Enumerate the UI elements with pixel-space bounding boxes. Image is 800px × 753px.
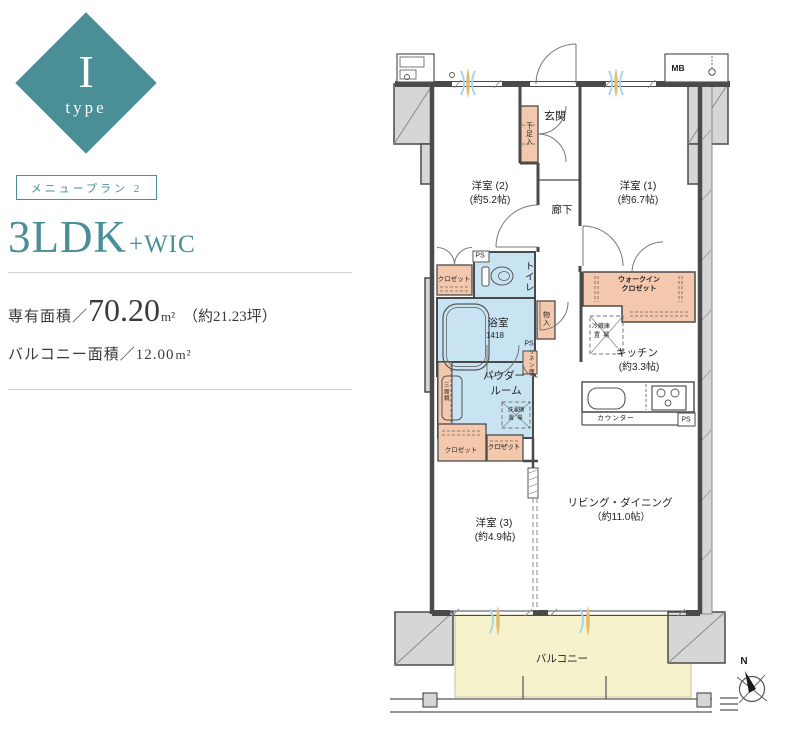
room-size-bedroom1: (約6.7帖) — [618, 196, 659, 206]
type-badge-content: I type — [36, 33, 136, 133]
area-tsubo: （約21.23坪） — [183, 305, 277, 326]
mb-label: MB — [671, 64, 684, 73]
divider-top — [8, 272, 352, 273]
layout-suffix: +WIC — [129, 231, 196, 259]
closet-label-left: クロゼット — [445, 448, 478, 455]
bedroom1-door — [583, 226, 623, 266]
divider-bottom — [8, 389, 352, 390]
room-label-bath: 浴室 — [488, 318, 509, 329]
area-value: 70.20 — [88, 292, 160, 329]
mirror-label: 三面鏡 — [442, 382, 448, 402]
wic-label-line2: クロゼット — [622, 286, 657, 293]
room-label-genkan: 玄関 — [544, 112, 566, 123]
bedroom2-door — [496, 205, 538, 247]
stove — [652, 386, 686, 410]
balcony-area-label: バルコニー面積／ — [8, 343, 136, 364]
bath-size-code: 1418 — [486, 332, 504, 340]
floorplan-graphic — [390, 40, 800, 753]
room-size-bedroom3: (約4.9帖) — [475, 533, 516, 543]
washer-label-line1: 洗濯機 — [508, 408, 525, 414]
room-size-bedroom2: (約5.2帖) — [470, 196, 511, 206]
storage-label: 物入 — [543, 311, 550, 327]
menu-plan-label: メニュープラン 2 — [16, 175, 157, 200]
compass-icon — [737, 671, 767, 703]
sliding-partition — [528, 468, 538, 611]
linen-label: リネン庫 — [527, 349, 533, 375]
room-size-kitchen: (約3.3帖) — [619, 363, 660, 373]
room-label-balcony: バルコニー — [536, 654, 588, 665]
ps-label-toilet: PS — [475, 253, 484, 260]
wic-door — [632, 242, 663, 273]
fridge-label-line2: 置場 — [594, 333, 612, 339]
north-label: N — [740, 657, 747, 667]
area-unit: m² — [161, 309, 175, 325]
area-label: 専有面積／ — [8, 305, 88, 326]
wic-label-line1: ウォークイン — [618, 277, 660, 284]
utility-box — [397, 54, 434, 82]
closet-left — [438, 424, 486, 461]
room-label-powder-line1: パウダー — [483, 371, 525, 382]
room-size-living: （約11.0帖） — [592, 513, 651, 523]
balcony-area-line: バルコニー面積／ 12.00 m² — [8, 343, 191, 364]
type-word: type — [65, 98, 106, 118]
closet-label-right: クロゼット — [488, 445, 521, 452]
closet-label-bedroom2: クロゼット — [438, 277, 471, 284]
room-label-toilet: トイレ — [523, 261, 533, 293]
shoe-cabinet-label: 下足入 — [526, 122, 533, 146]
page: I type メニュープラン 2 3LDK +WIC 専有面積／ 70.20 m… — [0, 0, 800, 753]
room-label-living: リビング・ダイニング — [568, 498, 673, 509]
counter-label: カウンター — [597, 416, 635, 423]
type-letter: I — [78, 49, 93, 95]
room-label-bedroom3: 洋室 (3) — [476, 518, 513, 529]
room-label-powder-line2: ルーム — [490, 386, 521, 397]
type-badge: I type — [15, 12, 156, 153]
exclusive-area-line: 専有面積／ 70.20 m² （約21.23坪） — [8, 292, 277, 329]
washer-label-line2: 置場 — [508, 416, 525, 422]
balcony-area-unit: m² — [175, 347, 191, 363]
fridge-label-line1: 冷蔵庫 — [592, 324, 610, 330]
layout-main: 3LDK — [8, 211, 127, 263]
entrance-door — [536, 44, 576, 84]
room-label-hallway: 廊下 — [552, 205, 573, 216]
ps-label-kitchen: PS — [681, 417, 690, 424]
floorplan: 玄関 洋室 (2) (約5.2帖) 廊下 洋室 (1) (約6.7帖) PS ト… — [390, 40, 800, 753]
ps-label-linen: PS — [524, 341, 533, 348]
right-wall-band — [701, 86, 712, 614]
room-label-bedroom2: 洋室 (2) — [472, 181, 509, 192]
toilet-tank — [482, 267, 489, 286]
layout-title: 3LDK +WIC — [8, 211, 196, 263]
room-label-kitchen: キッチン — [616, 348, 658, 359]
closet-doors — [437, 248, 472, 266]
balcony-area-value: 12.00 — [136, 347, 175, 364]
room-label-bedroom1: 洋室 (1) — [620, 181, 657, 192]
